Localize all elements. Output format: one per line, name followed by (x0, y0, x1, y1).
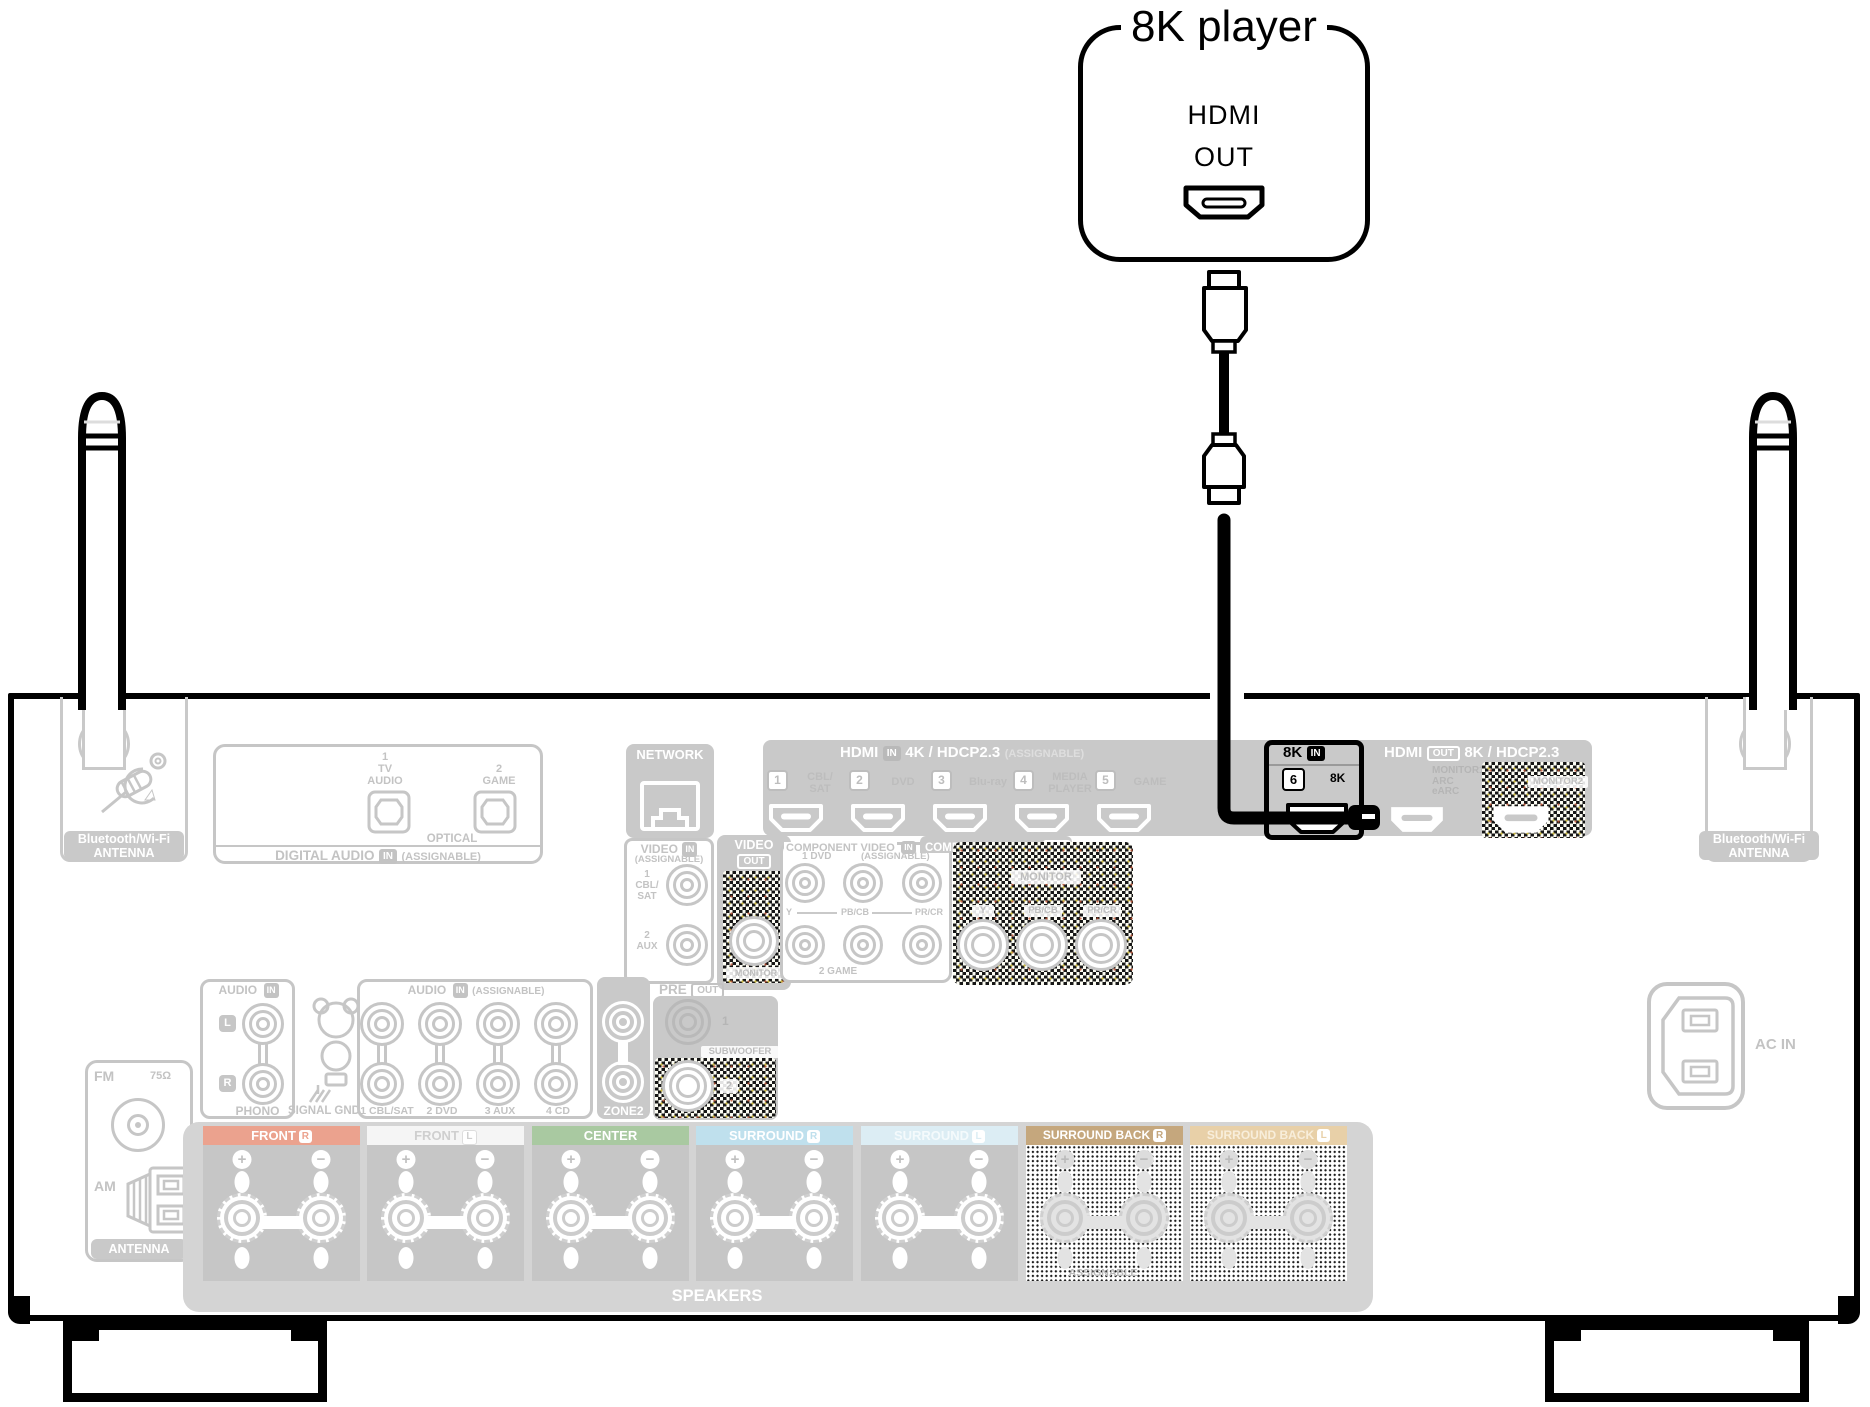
comp-out-monitor-label: MONITOR (1011, 870, 1081, 884)
comp-in-jack-1pb (843, 863, 883, 903)
optical-port-2-icon (472, 789, 518, 835)
video-in-jack1-label: 1CBL/SAT (630, 869, 664, 902)
pre-out-jack-2 (662, 1060, 714, 1112)
zone2-label: ZONE2 (597, 1104, 650, 1118)
signal-gnd-label: SIGNAL GND (288, 1105, 360, 1117)
audio-assign-jack-2r (418, 1062, 462, 1106)
hdmi-monitor2-port-icon (1489, 803, 1553, 836)
audio-assign-header: AUDIO IN (ASSIGNABLE) (357, 981, 593, 999)
speaker-block-front-r: FRONTR + − (203, 1126, 360, 1281)
antenna-screw-icon (96, 750, 172, 816)
receiver-corner-left (8, 1296, 30, 1324)
comp-out-y-label: Y (972, 905, 994, 917)
component-in-row2-label: 2 GAME (800, 966, 876, 977)
player-hdmi-label: HDMI (1078, 100, 1370, 131)
hdmi-port5-icon (1096, 803, 1152, 833)
tuner-antenna-label: ANTENNA (91, 1239, 187, 1259)
audio-phono-l-badge: L (219, 1015, 236, 1032)
comp-in-jack-1y (785, 863, 825, 903)
video-in-assignable: (ASSIGNABLE) (624, 854, 714, 865)
fm-label: FM (94, 1068, 114, 1084)
player-title: 8K player (1121, 2, 1327, 52)
digital-audio-footer: DIGITAL AUDIO IN (ASSIGNABLE) (213, 847, 543, 865)
hdmi-port1-icon (768, 803, 824, 833)
antenna-mast-right (1741, 386, 1805, 710)
hdmi-monitor1-label: MONITOR1ARCeARC (1432, 766, 1485, 798)
audio-assign-jack-1r (360, 1062, 404, 1106)
audio-assign-jack-4l (534, 1002, 578, 1046)
video-in-jack1 (666, 864, 708, 906)
comp-out-pr-label: PR/CR (1083, 905, 1121, 917)
binding-post-minus: − (295, 1145, 347, 1281)
speaker-block-surround-l: SURROUNDL + − (861, 1126, 1018, 1281)
comp-out-jack-pb (1016, 919, 1068, 971)
hdmi-port2-icon (850, 803, 906, 833)
fm-coax-jack (111, 1098, 165, 1152)
speaker-block-surround-back-r: SURROUND BACKR + − (1026, 1126, 1183, 1281)
audio-phono-header: AUDIO IN (200, 981, 295, 999)
comp-in-pb-label: PB/CB (841, 907, 869, 917)
audio-assign-jack-3l (476, 1002, 520, 1046)
video-out-monitor-label: MONITOR (726, 967, 786, 979)
speaker-block-front-l: FRONTL + − (367, 1126, 524, 1281)
zone2-jack-r (602, 1061, 644, 1103)
speaker-block-center: CENTER + − (532, 1126, 689, 1281)
am-label: AM (94, 1178, 116, 1194)
comp-in-pr-label: PR/CR (915, 907, 943, 917)
speaker-block-surround-back-l: SURROUND BACKL + − (1190, 1126, 1347, 1281)
diagram-canvas: 8K player HDMI OUT Bluetooth/Wi-FiANTENN… (0, 0, 1870, 1407)
hdmi-port5-label: GAME (1110, 776, 1190, 788)
digital-audio-port1-label: 1TVAUDIO (350, 751, 420, 787)
video-out-badge: OUT (737, 854, 770, 869)
pre-out-jack1-label: 1 (722, 1014, 729, 1028)
comp-in-jack-2pr (902, 925, 942, 965)
hdmi-monitor2-label: MONITOR2 (1528, 776, 1588, 788)
player-hdmi-out-port-icon (1182, 184, 1266, 222)
player-out-label: OUT (1078, 142, 1370, 173)
comp-out-jack-pr (1075, 919, 1127, 971)
antenna-mast-left (70, 386, 134, 710)
comp-in-dash1 (797, 912, 837, 914)
optical-label: OPTICAL (402, 833, 502, 845)
audio-phono-jack-r (242, 1063, 284, 1105)
hdmi-port1-label: CBL/SAT (780, 771, 860, 795)
fm-ohm-label: 75Ω (150, 1070, 171, 1082)
comp-out-pb-label: PB/CB (1024, 905, 1062, 917)
comp-in-y-label: Y (786, 907, 792, 917)
pre-out-jack-1 (665, 999, 711, 1045)
speaker-block-surround-r: SURROUNDR + − (696, 1126, 853, 1281)
ethernet-port-icon (639, 780, 701, 832)
network-label: NETWORK (626, 747, 714, 762)
pre-out-jack2-label: 2 (720, 1079, 738, 1093)
receiver-foot-left (63, 1321, 327, 1402)
ac-in-label: AC IN (1755, 1036, 1796, 1053)
comp-in-jack-1pr (902, 863, 942, 903)
comp-in-dash2 (872, 912, 912, 914)
ac-in-socket-icon (1645, 980, 1747, 1112)
video-in-jack2 (666, 924, 708, 966)
audio-phono-r-badge: R (219, 1075, 236, 1092)
audio-assign-jack-1l (360, 1002, 404, 1046)
audio-assign-c4-label: 4 CD (523, 1105, 593, 1117)
bt-antenna-left-label: Bluetooth/Wi-FiANTENNA (64, 831, 184, 860)
binding-post-plus: + (216, 1145, 268, 1281)
speakers-assignable-label: ASSIGNABLE (1028, 1267, 1178, 1279)
audio-assign-jack-3r (476, 1062, 520, 1106)
video-out-monitor-jack (729, 916, 779, 966)
video-in-jack2-label: 2AUX (630, 930, 664, 952)
digital-audio-port2-label: 2GAME (464, 763, 534, 787)
component-in-row1-label: 1 DVD (800, 851, 833, 862)
speakers-footer-label: SPEAKERS (637, 1287, 797, 1306)
audio-assign-jack-2l (418, 1002, 462, 1046)
hdmi-in-header: HDMI IN 4K / HDCP2.3 (ASSIGNABLE) (840, 744, 1084, 762)
hdmi-cable (1190, 255, 1420, 840)
audio-assign-jack-4r (534, 1062, 578, 1106)
hdmi-port4-icon (1014, 803, 1070, 833)
comp-in-jack-2pb (843, 925, 883, 965)
optical-port-1-icon (366, 789, 412, 835)
hdmi-port3-icon (932, 803, 988, 833)
comp-in-jack-2y (785, 925, 825, 965)
receiver-corner-right (1838, 1296, 1860, 1324)
bt-antenna-right-label: Bluetooth/Wi-FiANTENNA (1699, 831, 1819, 860)
audio-phono-jack-l (242, 1003, 284, 1045)
zone2-jack-l (602, 1001, 644, 1043)
pre-out-subwoofer-label: SUBWOOFER (701, 1046, 779, 1058)
comp-out-jack-y (957, 919, 1009, 971)
receiver-foot-right (1545, 1321, 1809, 1402)
